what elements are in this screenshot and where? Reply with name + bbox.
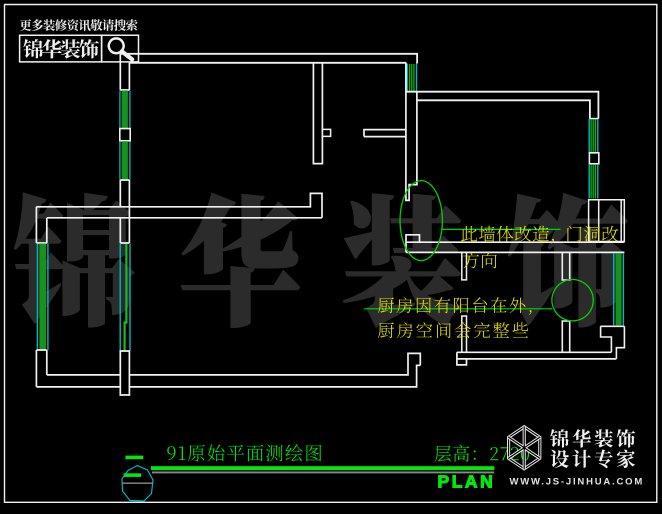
svg-text:PLAN: PLAN bbox=[438, 471, 496, 491]
svg-text:WWW.JS-JINHUA.COM: WWW.JS-JINHUA.COM bbox=[510, 476, 645, 487]
